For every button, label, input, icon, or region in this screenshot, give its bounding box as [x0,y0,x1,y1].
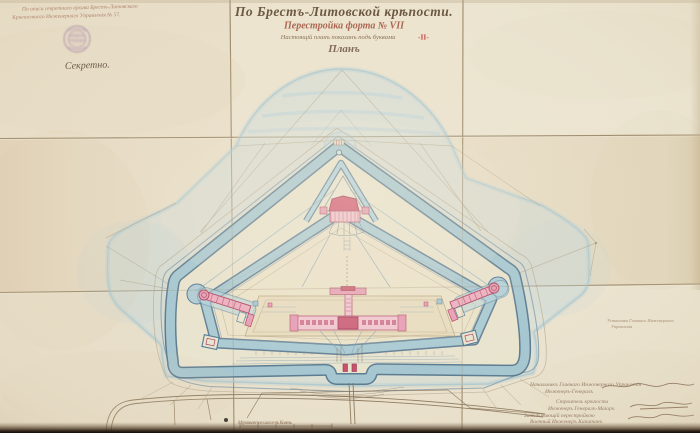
svg-text:Инженеръ Генералъ-Маіоръ: Инженеръ Генералъ-Маіоръ [547,406,615,412]
svg-text:-II-: -II- [418,33,429,42]
svg-text:УПРАВЛ: УПРАВЛ [69,38,85,43]
svg-text:Планъ: Планъ [327,43,360,55]
svg-text:Перестройка форта № VII: Перестройка форта № VII [283,21,405,32]
svg-text:По Брестъ-Литовской крѣпости.: По Брестъ-Литовской крѣпости. [234,4,453,19]
svg-text:Установка Главнаго Инженернаго: Установка Главнаго Инженернаго [607,318,675,323]
svg-text:Начальникъ Главнаго Инженернаг: Начальникъ Главнаго Инженернаго Управлен… [529,382,642,388]
svg-text:Инженеръ-Генералъ: Инженеръ-Генералъ [544,389,593,395]
svg-text:Управленія: Управленія [611,324,632,329]
svg-text:Секретно.: Секретно. [65,59,110,72]
svg-text:Настоящій планъ показанъ подъ: Настоящій планъ показанъ подъ буквами [280,34,396,41]
svg-text:Завѣдывающій перестройкою: Завѣдывающій перестройкою [524,412,595,419]
svg-text:Строитель крѣпости: Строитель крѣпости [556,399,608,405]
